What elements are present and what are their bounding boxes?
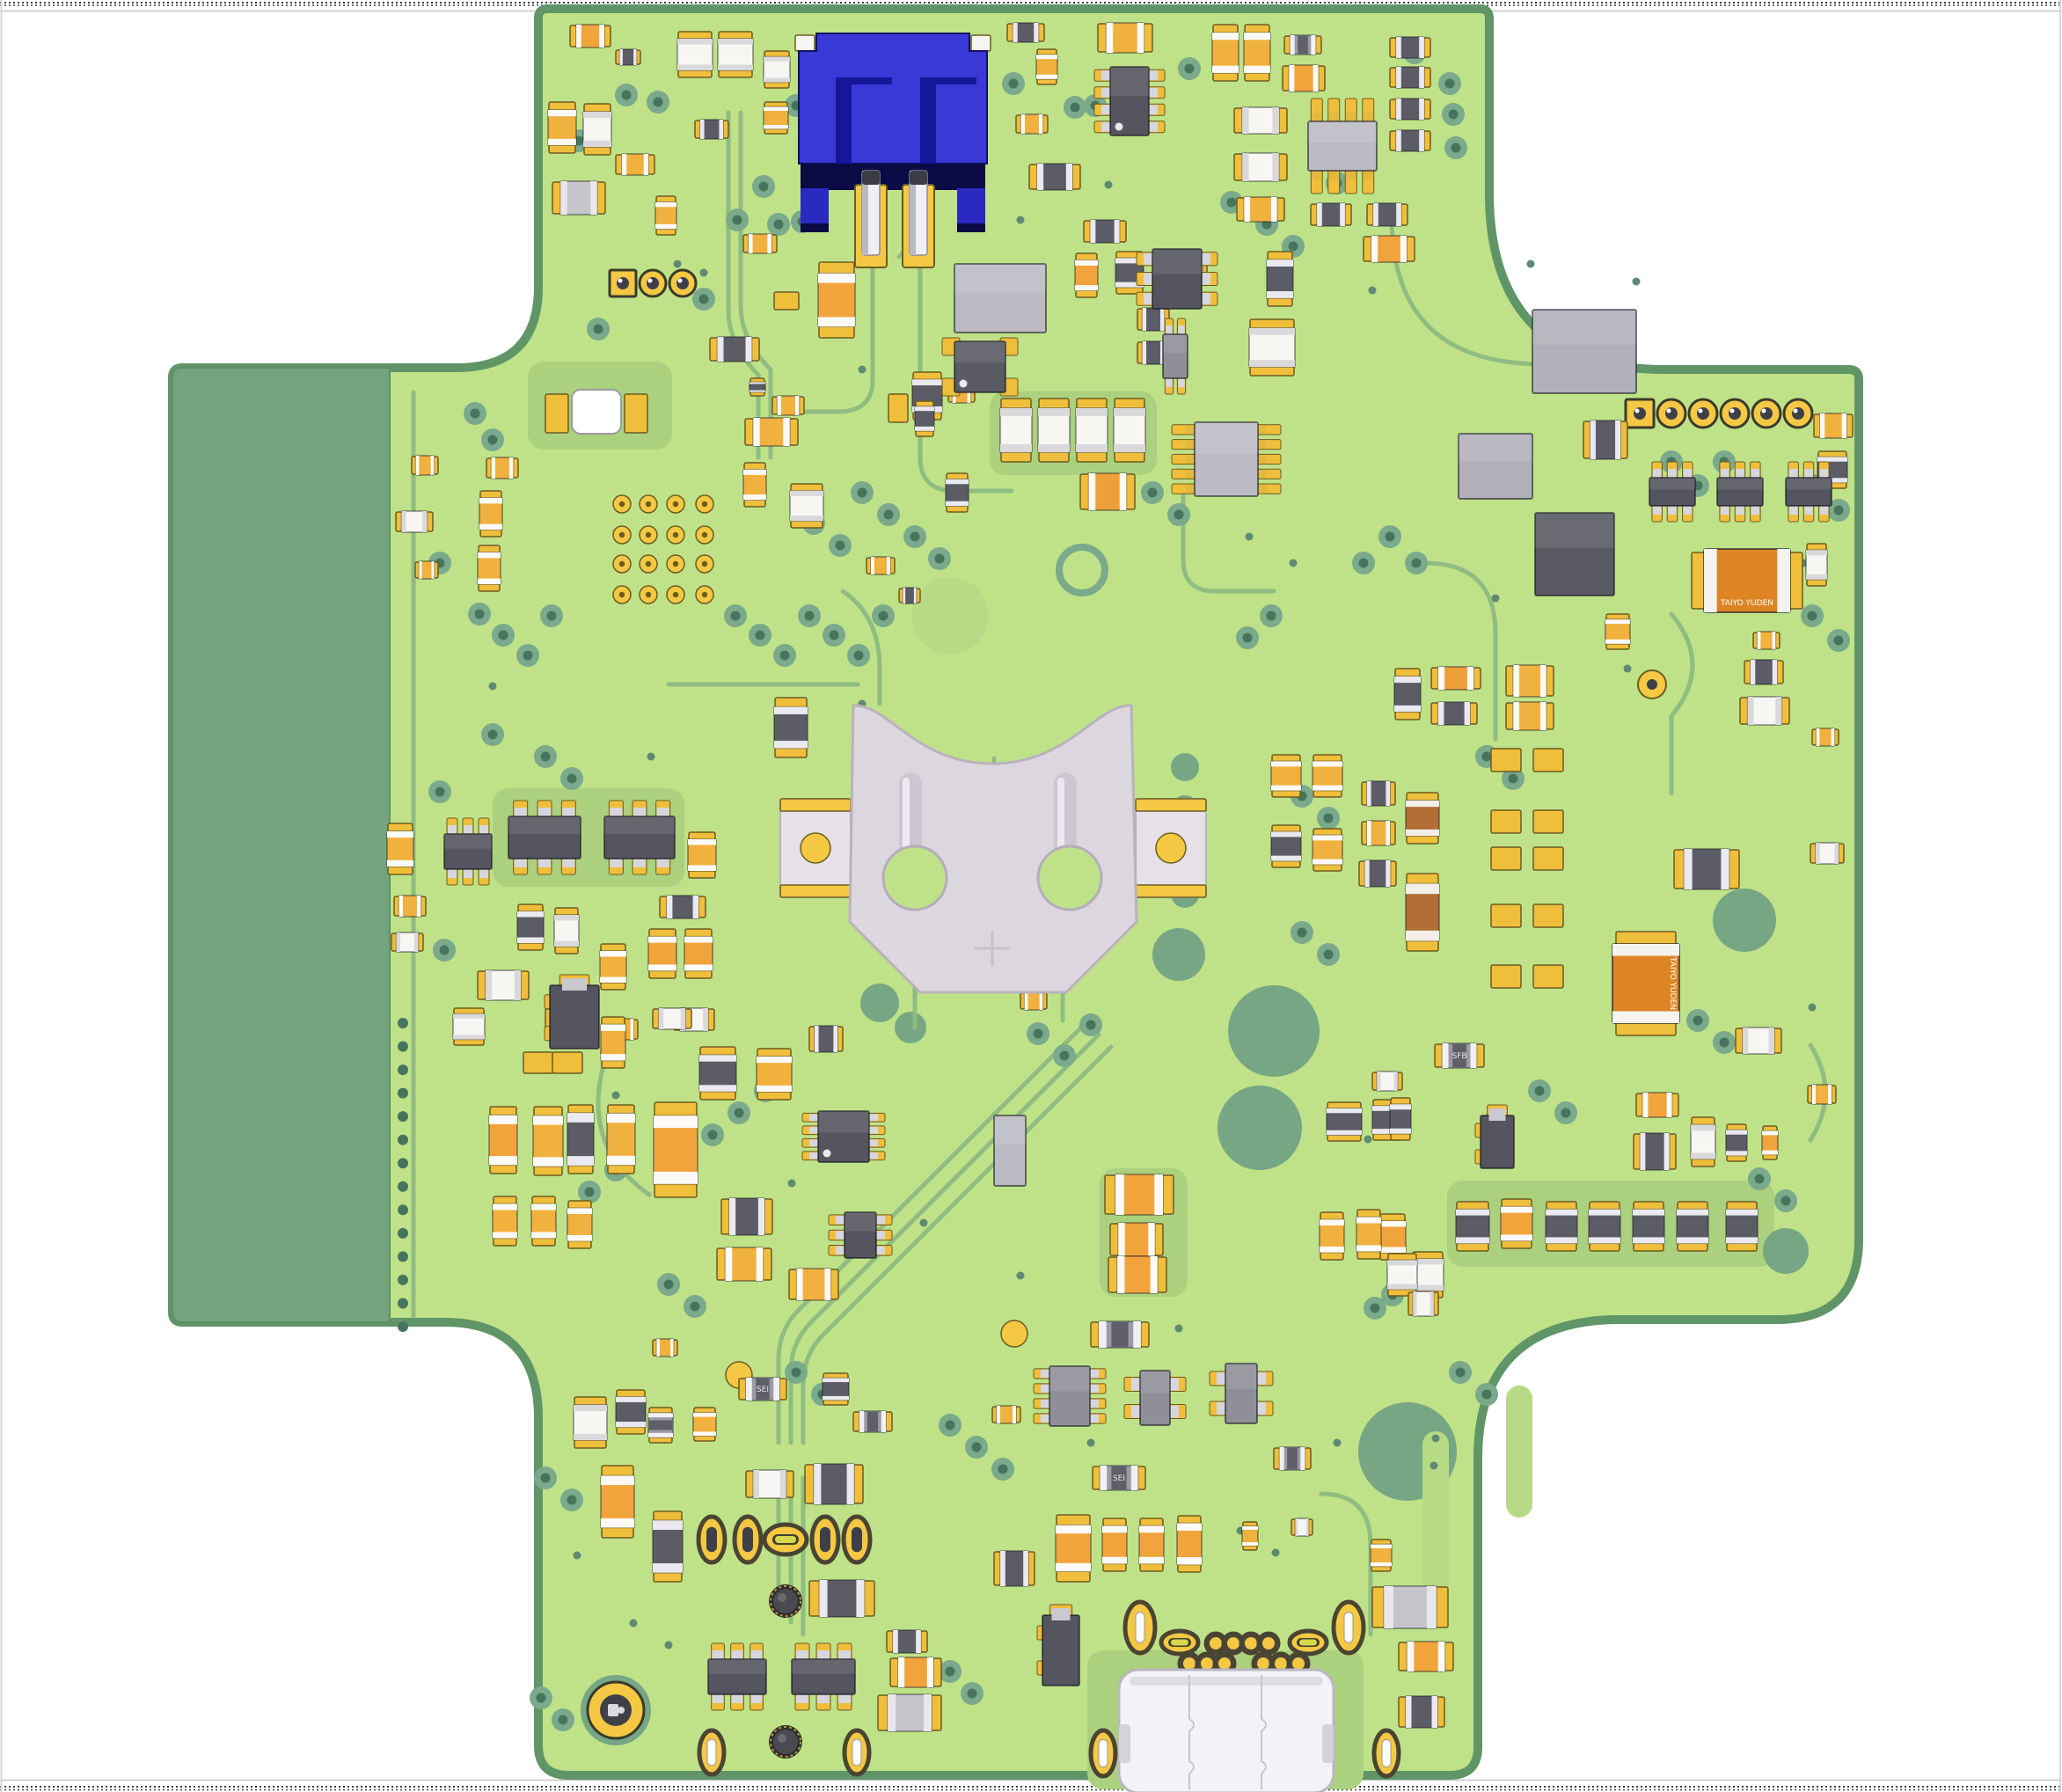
passive-chip (915, 401, 934, 436)
ic-package (829, 1212, 892, 1258)
passive-chip (774, 698, 808, 757)
passive-chip (1020, 992, 1047, 1010)
passive-chip (567, 1201, 592, 1248)
passive-chip (1736, 1028, 1781, 1054)
passive-chip (1501, 1199, 1532, 1248)
passive-chip (1431, 702, 1477, 725)
passive-chip (1291, 1518, 1313, 1536)
passive-chip (790, 484, 823, 528)
passive-chip (1356, 1210, 1381, 1259)
passive-chip (554, 908, 579, 954)
passive-chip (1390, 1098, 1411, 1140)
passive-chip (805, 1464, 863, 1504)
passive-chip (391, 933, 423, 952)
passive-chip (1036, 49, 1057, 84)
svg-text:SEI: SEI (757, 1386, 769, 1394)
passive-chip (1271, 755, 1301, 797)
passive-chip (1242, 1522, 1258, 1550)
passive-chip (1372, 1072, 1402, 1091)
pin-header (610, 270, 696, 296)
tantalum-cap: TAIYO YUDEN (1612, 932, 1679, 1035)
passive-chip (1007, 23, 1044, 42)
passive-chip (1267, 252, 1293, 306)
passive-chip (1605, 614, 1630, 649)
ic-package (604, 801, 675, 874)
ic-package (1172, 422, 1281, 496)
passive-chip (764, 51, 790, 88)
passive-chip (655, 196, 676, 235)
passive-chip (1362, 781, 1395, 806)
passive-chip (1016, 114, 1048, 134)
svg-text:TAIYO YUDEN: TAIYO YUDEN (1720, 599, 1773, 608)
passive-chip (1399, 1696, 1444, 1728)
passive-chip (567, 1105, 594, 1174)
ic-package (1137, 249, 1217, 309)
passive-chip (654, 1102, 698, 1197)
passive-chip (878, 1694, 941, 1731)
passive-chip (1812, 728, 1839, 746)
passive-chip (1740, 697, 1789, 725)
passive-chip (1313, 755, 1342, 797)
passive-chip (616, 154, 654, 175)
passive-chip (1105, 1174, 1174, 1215)
passive-chip (648, 1408, 673, 1443)
passive-chip (1506, 702, 1554, 730)
passive-chip (1390, 67, 1430, 88)
ic-package (444, 818, 492, 885)
passive-chip (396, 511, 433, 532)
passive-chip (1456, 1202, 1489, 1251)
passive-chip (531, 1196, 556, 1246)
passive-chip (479, 491, 502, 537)
passive-chip (1810, 843, 1844, 864)
passive-chip (890, 1657, 941, 1687)
sot89-package (545, 975, 599, 1049)
passive-chip (1139, 1518, 1164, 1571)
passive-chip (1080, 473, 1135, 510)
passive-chip (749, 378, 765, 396)
passive-chip (1234, 153, 1287, 181)
tantalum-cap: TAIYO YUDEN (1692, 549, 1802, 612)
passive-chip (789, 1269, 838, 1300)
passive-chip (695, 120, 728, 139)
passive-chip (1379, 1214, 1406, 1260)
thru-pad (1638, 670, 1666, 699)
passive-chip (1364, 236, 1415, 262)
disc-pad (1001, 1320, 1027, 1347)
passive-chip (1371, 1540, 1392, 1571)
passive-chip (1056, 1515, 1091, 1582)
passive-chip (1394, 669, 1421, 720)
passive-chip (1320, 1212, 1344, 1260)
passive-chip (1390, 99, 1430, 120)
passive-chip (412, 456, 438, 475)
dome-button (769, 1584, 802, 1618)
passive-chip (809, 1580, 874, 1617)
passive-chip (533, 1107, 563, 1175)
passive-chip (616, 1390, 646, 1434)
passive-chip (1583, 421, 1627, 459)
crystal (545, 390, 647, 434)
pcb-3d-view: SFBSEISEITAIYO YUDENTAIYO YUDEN (0, 0, 2062, 1792)
passive-chip (1359, 860, 1396, 887)
ic-package (954, 264, 1046, 333)
passive-chip (1814, 413, 1853, 438)
mount-hole (581, 1675, 651, 1745)
passive-chip (574, 1397, 607, 1448)
passive-chip (517, 904, 544, 950)
passive-chip (743, 234, 777, 253)
ic-package (1717, 462, 1763, 522)
passive-chip (1108, 1256, 1166, 1293)
passive-chip (1726, 1124, 1747, 1161)
passive-chip (887, 1630, 927, 1653)
passive-chip (552, 181, 605, 215)
passive-chip (1244, 25, 1270, 81)
svg-text:SFB: SFB (1451, 1052, 1466, 1061)
passive-chip (1076, 399, 1108, 462)
passive-chip (710, 337, 759, 362)
passive-chip (746, 1470, 793, 1498)
passive-chip (1084, 220, 1126, 243)
passive-chip (1284, 35, 1321, 55)
passive-chip (1137, 308, 1169, 331)
passive-chip (1271, 825, 1301, 867)
passive-chip (653, 1008, 691, 1029)
passive-chip (693, 1408, 716, 1441)
passive-chip (1390, 130, 1430, 151)
passive-chip (1327, 1102, 1362, 1141)
passive-chip: SFB (1435, 1043, 1484, 1068)
passive-chip (1806, 544, 1827, 586)
ic-package (508, 801, 581, 874)
passive-chip (1674, 849, 1739, 889)
passive-chip (548, 102, 576, 153)
passive-chip (1075, 253, 1098, 297)
passive-chip (1633, 1202, 1664, 1251)
passive-chip (1408, 1291, 1438, 1316)
passive-chip (1098, 23, 1152, 53)
passive-chip (1311, 203, 1351, 226)
passive-chip (486, 457, 518, 479)
passive-chip (1237, 197, 1284, 222)
passive-chip (818, 262, 855, 338)
passive-chip (677, 32, 713, 77)
copper-strip (172, 368, 390, 1322)
passive-chip (387, 823, 413, 874)
passive-chip (1000, 399, 1032, 462)
passive-chip (1249, 319, 1295, 376)
passive-chip (600, 944, 626, 990)
passive-chip (1390, 37, 1430, 58)
passive-chip (717, 1247, 771, 1281)
passive-chip (1362, 821, 1395, 845)
passive-chip (745, 418, 798, 446)
passive-chip (653, 1339, 677, 1357)
ic-package (1535, 513, 1614, 596)
passive-chip (823, 1373, 849, 1405)
passive-chip (1399, 1642, 1453, 1671)
passive-chip (1212, 25, 1239, 81)
passive-chip (1114, 399, 1145, 462)
passive-chip (743, 463, 766, 507)
dome-button (769, 1725, 802, 1759)
ic-package (994, 1115, 1026, 1186)
passive-chip (992, 1406, 1020, 1423)
passive-chip (1636, 1093, 1678, 1117)
ic-package (1649, 462, 1695, 522)
passive-chip: SEI (1093, 1466, 1145, 1490)
passive-chip (1091, 1321, 1149, 1348)
passive-chip (1367, 203, 1408, 226)
passive-chip (757, 1049, 792, 1100)
passive-chip (684, 929, 713, 978)
passive-chip (1691, 1117, 1715, 1167)
passive-chip (1274, 1447, 1311, 1470)
passive-chip (1029, 164, 1080, 190)
passive-chip (809, 1026, 843, 1052)
passive-chip (616, 49, 640, 65)
passive-chip (601, 1466, 634, 1538)
passive-chip: SEI (739, 1378, 786, 1401)
passive-chip (899, 588, 920, 603)
passive-chip (648, 929, 676, 978)
passive-chip (1372, 1586, 1448, 1628)
passive-chip (764, 102, 788, 134)
ic-package (708, 1643, 766, 1710)
passive-chip (1506, 665, 1554, 697)
passive-chip (1406, 874, 1439, 951)
sot89-package (1037, 1605, 1079, 1686)
passive-chip (493, 1196, 517, 1246)
passive-chip (607, 1105, 635, 1174)
passive-chip (1406, 793, 1439, 844)
passive-chip (394, 896, 426, 917)
passive-chip (583, 104, 611, 155)
passive-chip (1753, 632, 1780, 649)
svg-text:TAIYO YUDEN: TAIYO YUDEN (1668, 956, 1677, 1010)
passive-chip (1808, 1085, 1836, 1104)
viewer-canvas: SFBSEISEITAIYO YUDENTAIYO YUDEN (0, 0, 2062, 1792)
passive-chip (1546, 1202, 1577, 1251)
ic-package (792, 1643, 855, 1710)
passive-chip (718, 32, 753, 77)
passive-chip (1744, 660, 1783, 684)
passive-chip (1283, 65, 1325, 91)
passive-chip (772, 396, 804, 415)
ic-package (1459, 434, 1532, 499)
passive-chip (1038, 399, 1070, 462)
passive-chip (699, 1047, 736, 1100)
passive-chip (1762, 1126, 1778, 1159)
passive-chip (1102, 1518, 1127, 1571)
passive-chip (688, 832, 716, 878)
passive-chip (1234, 107, 1287, 134)
passive-chip (1726, 1202, 1758, 1251)
passive-chip (866, 557, 895, 574)
passive-chip (946, 473, 969, 512)
passive-chip (1431, 667, 1481, 690)
passive-chip (478, 970, 529, 1000)
passive-chip (1313, 829, 1342, 871)
passive-chip (1177, 1516, 1202, 1572)
passive-chip (660, 896, 706, 918)
ic-package (1786, 462, 1832, 522)
passive-chip (570, 25, 611, 48)
passive-chip (1634, 1133, 1676, 1170)
passive-chip (489, 1107, 517, 1174)
passive-chip (653, 1511, 683, 1582)
passive-chip (1677, 1202, 1708, 1251)
ic-package (1532, 310, 1636, 393)
passive-chip (478, 545, 501, 591)
passive-chip (994, 1551, 1035, 1586)
passive-chip (415, 561, 438, 579)
passive-chip (721, 1198, 772, 1235)
passive-chip (453, 1008, 485, 1045)
passive-chip (1387, 1254, 1417, 1296)
svg-text:SEI: SEI (1113, 1474, 1125, 1483)
passive-chip (601, 1017, 625, 1068)
passive-chip (853, 1411, 892, 1432)
passive-chip (1110, 1223, 1163, 1256)
passive-chip (1589, 1202, 1620, 1251)
